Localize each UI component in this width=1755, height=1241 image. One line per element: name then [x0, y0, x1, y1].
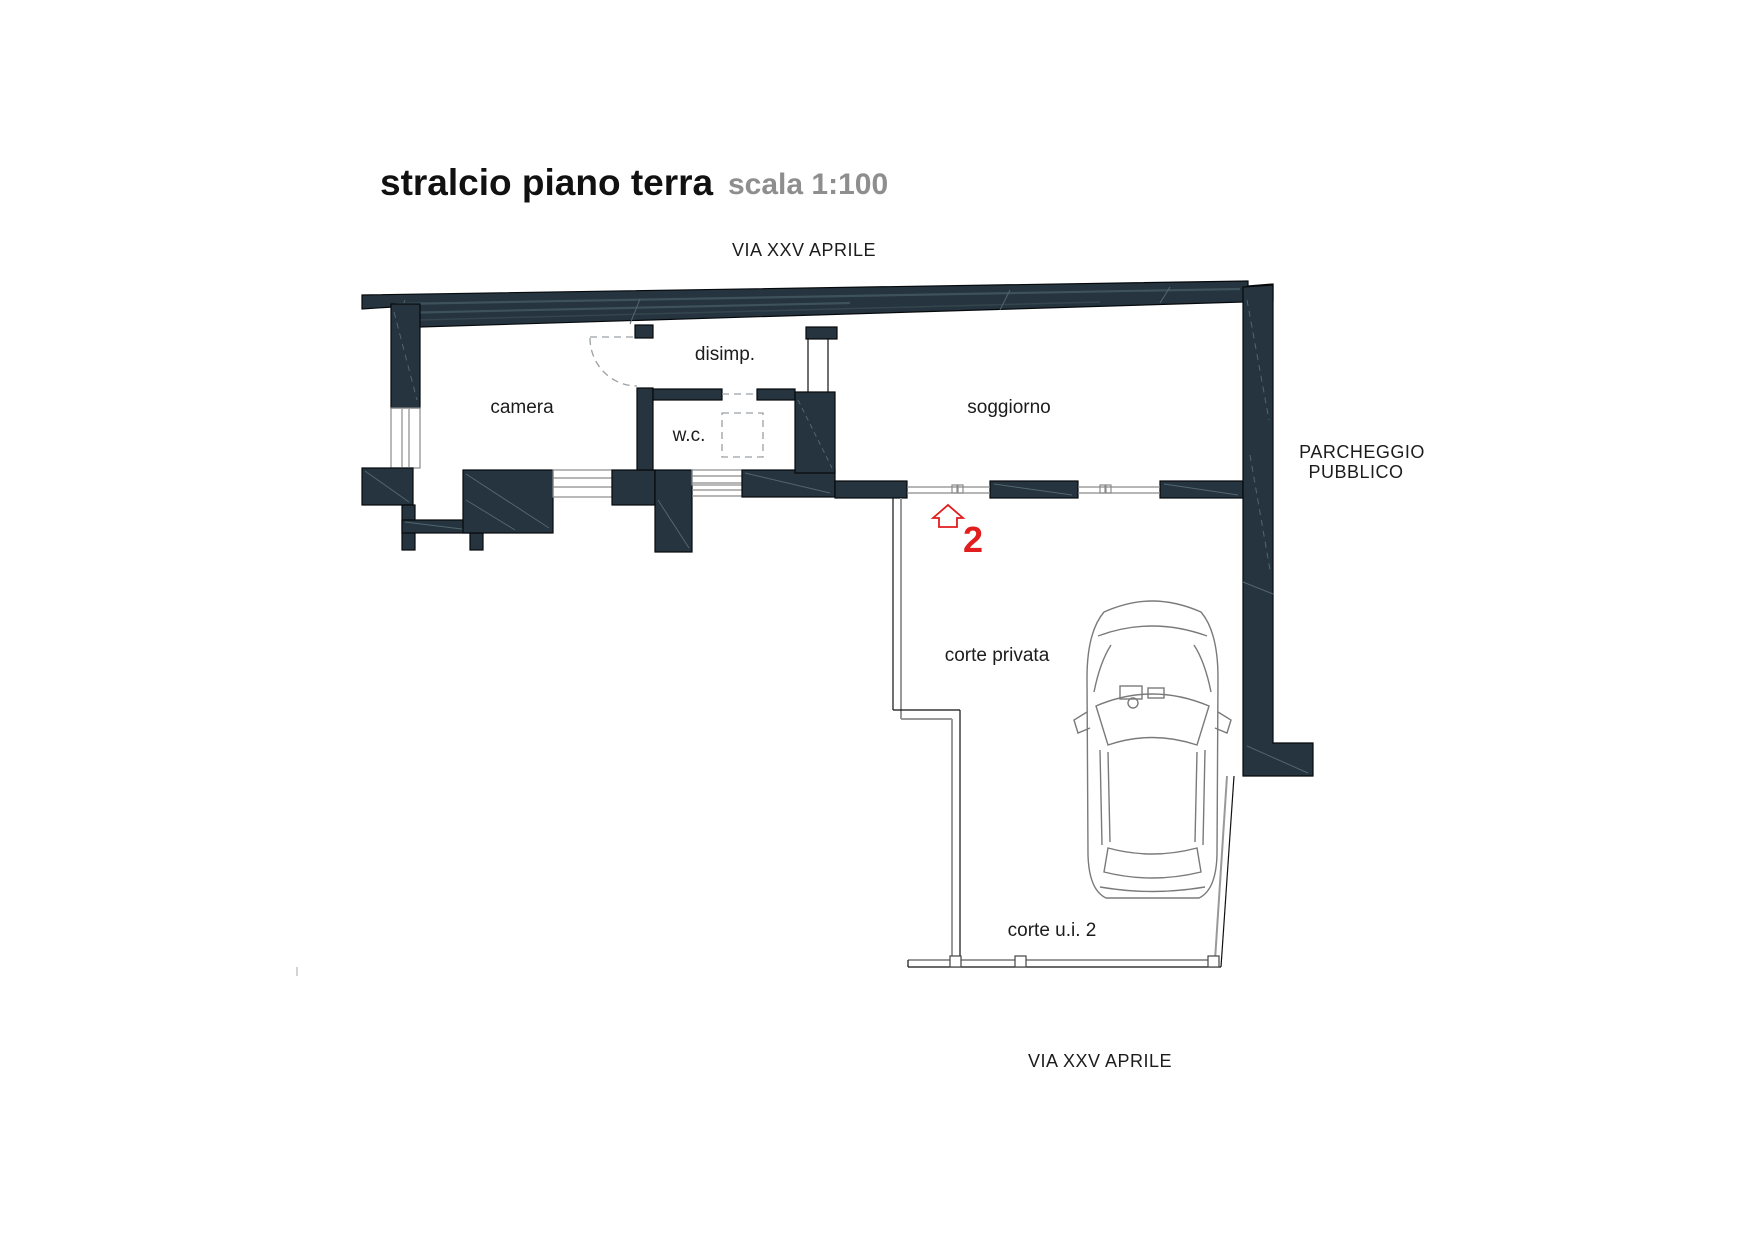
- hallway-east-wall: [795, 327, 837, 473]
- south-wall-middle: [612, 470, 692, 552]
- living-south-window-a: [907, 485, 990, 493]
- room-label-private-court: corte privata: [945, 645, 1050, 666]
- wc-south-wall: [742, 470, 835, 497]
- living-south-wall: [835, 481, 1243, 498]
- room-label-wc: w.c.: [672, 425, 706, 446]
- fence-post: [1208, 956, 1219, 967]
- east-wall: [1243, 285, 1313, 776]
- bedroom-south-wall: [463, 470, 553, 533]
- street-label-bottom: VIA XXV APRILE: [1028, 1051, 1172, 1071]
- west-window: [391, 408, 420, 468]
- south-west-corner-wall: [362, 468, 413, 505]
- wc-south-window: [692, 470, 742, 496]
- parking-label-line2: PUBBLICO: [1308, 462, 1403, 482]
- bedroom-wc-divider-wall: [635, 325, 653, 470]
- room-label-bedroom: camera: [490, 397, 554, 418]
- street-label-top: VIA XXV APRILE: [732, 240, 876, 260]
- bedroom-south-window: [553, 470, 612, 497]
- car-outline: [1074, 601, 1231, 898]
- street-wall-north: [362, 281, 1273, 329]
- living-south-window-b: [1078, 485, 1160, 493]
- wc-shower-dashed: [722, 413, 763, 457]
- floor-plan-drawing: 2 stralcio piano terra scala 1:100 VIA X…: [0, 0, 1755, 1241]
- bedroom-door-swing: [590, 337, 637, 386]
- floor-plan-page: 2 stralcio piano terra scala 1:100 VIA X…: [0, 0, 1755, 1241]
- fence-post: [950, 956, 961, 967]
- courtyard-fence: [893, 498, 1234, 967]
- room-label-unit-court: corte u.i. 2: [1008, 920, 1097, 941]
- parking-label-line1: PARCHEGGIO: [1299, 442, 1425, 462]
- unit-marker: 2: [933, 505, 983, 560]
- unit-number: 2: [963, 519, 983, 560]
- west-wall: [391, 304, 420, 408]
- fence-post: [1015, 956, 1026, 967]
- page-title: stralcio piano terra: [380, 162, 714, 203]
- wc-north-wall: [653, 389, 795, 400]
- scale-note: scala 1:100: [728, 168, 888, 201]
- house-icon: [933, 505, 963, 527]
- room-label-living: soggiorno: [967, 397, 1050, 418]
- room-label-hallway: disimp.: [695, 344, 755, 365]
